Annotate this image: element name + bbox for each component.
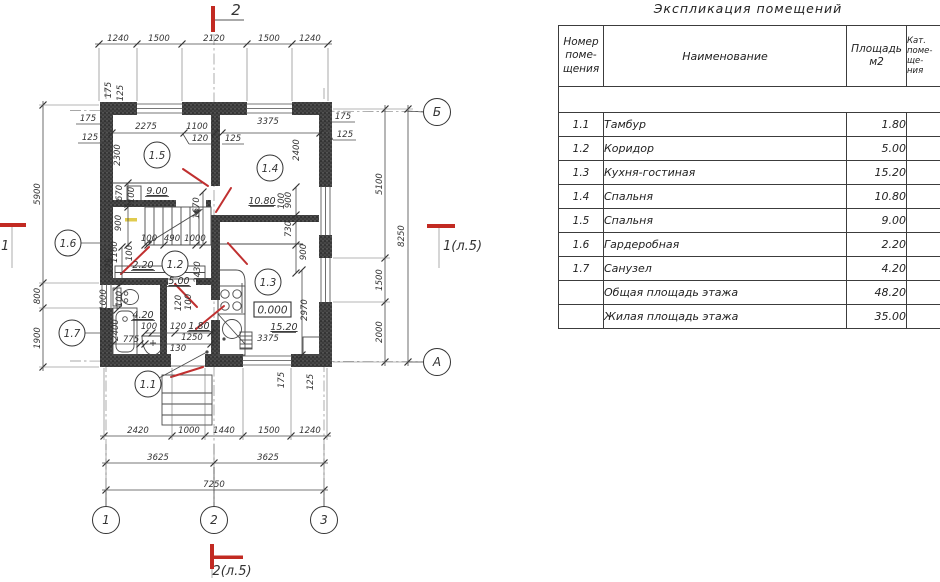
table-header-row: Номер поме- щения Наименование Площадь м… (559, 26, 940, 87)
dim-label: 3375 (257, 117, 279, 127)
col-header-name: Наименование (604, 26, 847, 87)
dim-label: 1000 (178, 426, 200, 436)
cell-area: 2.20 (847, 233, 907, 257)
dim-label: 175 (80, 114, 96, 124)
area-label: 10.80 (248, 196, 275, 207)
dim-label: 175 (335, 112, 351, 122)
dim-label: 1240 (299, 426, 321, 436)
dim-label: 2275 (135, 122, 157, 132)
cell-number: 1.5 (559, 209, 604, 233)
entrance-steps (162, 375, 212, 425)
dim-label: 900 (114, 215, 124, 231)
dim-label: 120 (192, 134, 208, 144)
dim-label: 125 (306, 374, 316, 390)
cell-category (907, 209, 940, 233)
cell-name: Тамбур (604, 113, 847, 137)
axis-circle: 1 (93, 507, 120, 534)
cell-number (559, 305, 604, 329)
cell-area: 9.00 (847, 209, 907, 233)
cell-area: 10.80 (847, 185, 907, 209)
dim-label: 125 (82, 133, 98, 143)
svg-text:1.6: 1.6 (60, 238, 77, 250)
dim-label: 175 (277, 372, 287, 388)
area-label: 4.20 (132, 310, 153, 321)
svg-text:2: 2 (210, 513, 218, 527)
svg-text:1: 1 (102, 513, 110, 527)
cell-number: 1.7 (559, 257, 604, 281)
cell-category (907, 305, 940, 329)
dim-label: 2420 (127, 426, 149, 436)
cell-area: 1.80 (847, 113, 907, 137)
dim-label: 2400 (111, 319, 121, 341)
axis-circle: Б (424, 99, 451, 126)
dim-label: 3625 (257, 453, 279, 463)
dim-label: 775 (123, 335, 139, 345)
kitchen-corner-sink (218, 314, 252, 349)
cell-number: 1.3 (559, 161, 604, 185)
table-spacer-row (559, 87, 940, 113)
dim-label: 100 (125, 245, 135, 261)
dim-label: 5100 (375, 173, 385, 195)
cell-number: 1.2 (559, 137, 604, 161)
axis-circle: 3 (311, 507, 338, 534)
dim-label: 1500 (258, 34, 280, 44)
cell-area: 4.20 (847, 257, 907, 281)
svg-text:Б: Б (433, 105, 441, 119)
svg-text:1.5: 1.5 (149, 150, 166, 162)
dim-label: 120 (170, 322, 186, 332)
window-right-bedroom (319, 187, 332, 235)
room-number-circle: 1.6 (55, 230, 81, 256)
dim-label: 1900 (33, 327, 43, 349)
cell-name: Кухня-гостиная (604, 161, 847, 185)
dim-label: 1440 (213, 426, 235, 436)
table-title: Экспликация помещений (558, 1, 938, 16)
svg-text:1.3: 1.3 (260, 277, 277, 289)
dim-label: 8250 (397, 225, 407, 247)
section-marker-top: 2 (211, 1, 244, 32)
dim-label: 2120 (203, 34, 225, 44)
table-row: Жилая площадь этажа35.00 (559, 305, 940, 329)
dim-label: 1250 (181, 333, 203, 343)
door-bedroom-1-4 (216, 188, 231, 212)
table-row: 1.3Кухня-гостиная15.20 (559, 161, 940, 185)
dim-label: 2430 (193, 261, 203, 283)
area-label: 15.20 (270, 322, 297, 333)
dim-label: 175 (105, 258, 115, 274)
svg-text:0.000: 0.000 (257, 305, 287, 317)
cell-category (907, 113, 940, 137)
cell-category (907, 281, 940, 305)
cell-area: 5.00 (847, 137, 907, 161)
cell-category (907, 185, 940, 209)
dim-label: 900 (284, 192, 294, 208)
cell-category (907, 161, 940, 185)
cell-number: 1.6 (559, 233, 604, 257)
stove (218, 286, 245, 314)
dim-label: 1000 (99, 289, 109, 311)
area-label: 9.00 (146, 186, 167, 197)
cell-number (559, 281, 604, 305)
cell-name: Спальня (604, 185, 847, 209)
dim-label: 5900 (33, 183, 43, 205)
area-label: 1.80 (188, 321, 209, 332)
dim-label: 1500 (375, 269, 385, 291)
room-number-circle: 1.4 (257, 155, 283, 181)
window-bottom-kitchen (243, 354, 291, 367)
dim-label: 1670 (192, 197, 202, 219)
section-label-left: 1 (1, 239, 9, 254)
svg-text:1.1: 1.1 (140, 379, 157, 391)
room-number-circle: 1.7 (59, 320, 85, 346)
stair-highlight (125, 218, 137, 222)
section-marker-bottom: 2(л.5) (210, 544, 252, 579)
cell-name: Спальня (604, 209, 847, 233)
dim-label: 1500 (258, 426, 280, 436)
cell-area: 35.00 (847, 305, 907, 329)
room-number-circle: 1.3 (255, 269, 281, 295)
cell-name: Коридор (604, 137, 847, 161)
col-header-area: Площадь м2 (847, 26, 907, 87)
dim-label: 1240 (107, 34, 129, 44)
dim-label: 1500 (148, 34, 170, 44)
elevation-mark: 0.000 (254, 302, 291, 317)
dim-label: 125 (225, 134, 241, 144)
cell-name: Жилая площадь этажа (604, 305, 847, 329)
section-label-top: 2 (231, 1, 241, 19)
table-body: 1.1Тамбур1.801.2Коридор5.001.3Кухня-гост… (559, 113, 940, 329)
cell-category (907, 137, 940, 161)
dim-label: 100 (141, 234, 157, 244)
dim-label: 900 (299, 244, 309, 260)
area-label: 2.20 (132, 260, 153, 271)
col-header-category: Кат. поме- ще- ния (907, 26, 940, 87)
table-row: Общая площадь этажа48.20 (559, 281, 940, 305)
dim-label: 7250 (203, 480, 225, 490)
axis-circle: 2 (201, 507, 228, 534)
dim-label: 1100 (186, 122, 208, 132)
cell-number: 1.4 (559, 185, 604, 209)
dim-label: 2400 (292, 139, 302, 161)
svg-text:1.7: 1.7 (64, 328, 81, 340)
dim-label: 730 (284, 221, 294, 237)
cell-area: 15.20 (847, 161, 907, 185)
dim-label: 100 (115, 291, 125, 307)
dim-label: 1240 (299, 34, 321, 44)
dim-label: 120 (174, 295, 184, 311)
dim-label: 100 (141, 322, 157, 332)
table-row: 1.1Тамбур1.80 (559, 113, 940, 137)
dim-label: 100 (184, 294, 194, 310)
dim-label: 100 (127, 187, 137, 203)
dim-label: 800 (33, 288, 43, 304)
cell-number: 1.1 (559, 113, 604, 137)
dim-label: 490 (164, 234, 180, 244)
svg-text:1.2: 1.2 (167, 259, 184, 271)
table-row: 1.4Спальня10.80 (559, 185, 940, 209)
cell-name: Общая площадь этажа (604, 281, 847, 305)
svg-text:А: А (432, 355, 441, 369)
area-label: 5.00 (168, 276, 189, 287)
col-header-number: Номер поме- щения (559, 26, 604, 87)
dim-label: 2300 (113, 144, 123, 166)
axis-circle: А (424, 349, 451, 376)
window-top-right (247, 102, 292, 115)
table-row: 1.6Гардеробная2.20 (559, 233, 940, 257)
room-number-circle: 1.5 (144, 142, 170, 168)
cell-name: Санузел (604, 257, 847, 281)
dim-label: 3375 (257, 334, 279, 344)
table-row: 1.5Спальня9.00 (559, 209, 940, 233)
dim-label: 2970 (300, 299, 310, 321)
section-label-right: 1(л.5) (443, 239, 482, 254)
window-top-left (137, 102, 182, 115)
section-label-bottom: 2(л.5) (212, 564, 251, 579)
dim-label: 125 (116, 85, 126, 101)
dim-label: 175 (104, 82, 114, 98)
cell-category (907, 257, 940, 281)
svg-text:1.4: 1.4 (262, 163, 279, 175)
dim-label: 670 (115, 185, 125, 201)
kitchen-counter (218, 270, 252, 355)
door-kitchen (228, 243, 247, 264)
window-right-kitchen (319, 258, 332, 302)
room-number-circle: 1.1 (135, 371, 161, 397)
svg-text:3: 3 (320, 513, 328, 527)
cell-area: 48.20 (847, 281, 907, 305)
room-number-circle: 1.2 (162, 251, 188, 277)
section-marker-right: 1(л.5) (427, 224, 482, 268)
dim-label: 1000 (184, 234, 206, 244)
room-schedule-table: Номер поме- щения Наименование Площадь м… (558, 25, 940, 329)
dim-label: 130 (170, 344, 186, 354)
kitchen-cabinet (303, 337, 320, 355)
dim-label: 2000 (375, 321, 385, 343)
cell-name: Гардеробная (604, 233, 847, 257)
table-row: 1.2Коридор5.00 (559, 137, 940, 161)
dim-label: 3625 (147, 453, 169, 463)
table-row: 1.7Санузел4.20 (559, 257, 940, 281)
floor-plan-sheet: 2 2(л.5) 1 1(л.5) 0.000 1240150021201500… (0, 0, 940, 582)
dim-label: 125 (337, 130, 353, 140)
cell-category (907, 233, 940, 257)
section-marker-left: 1 (0, 223, 26, 268)
